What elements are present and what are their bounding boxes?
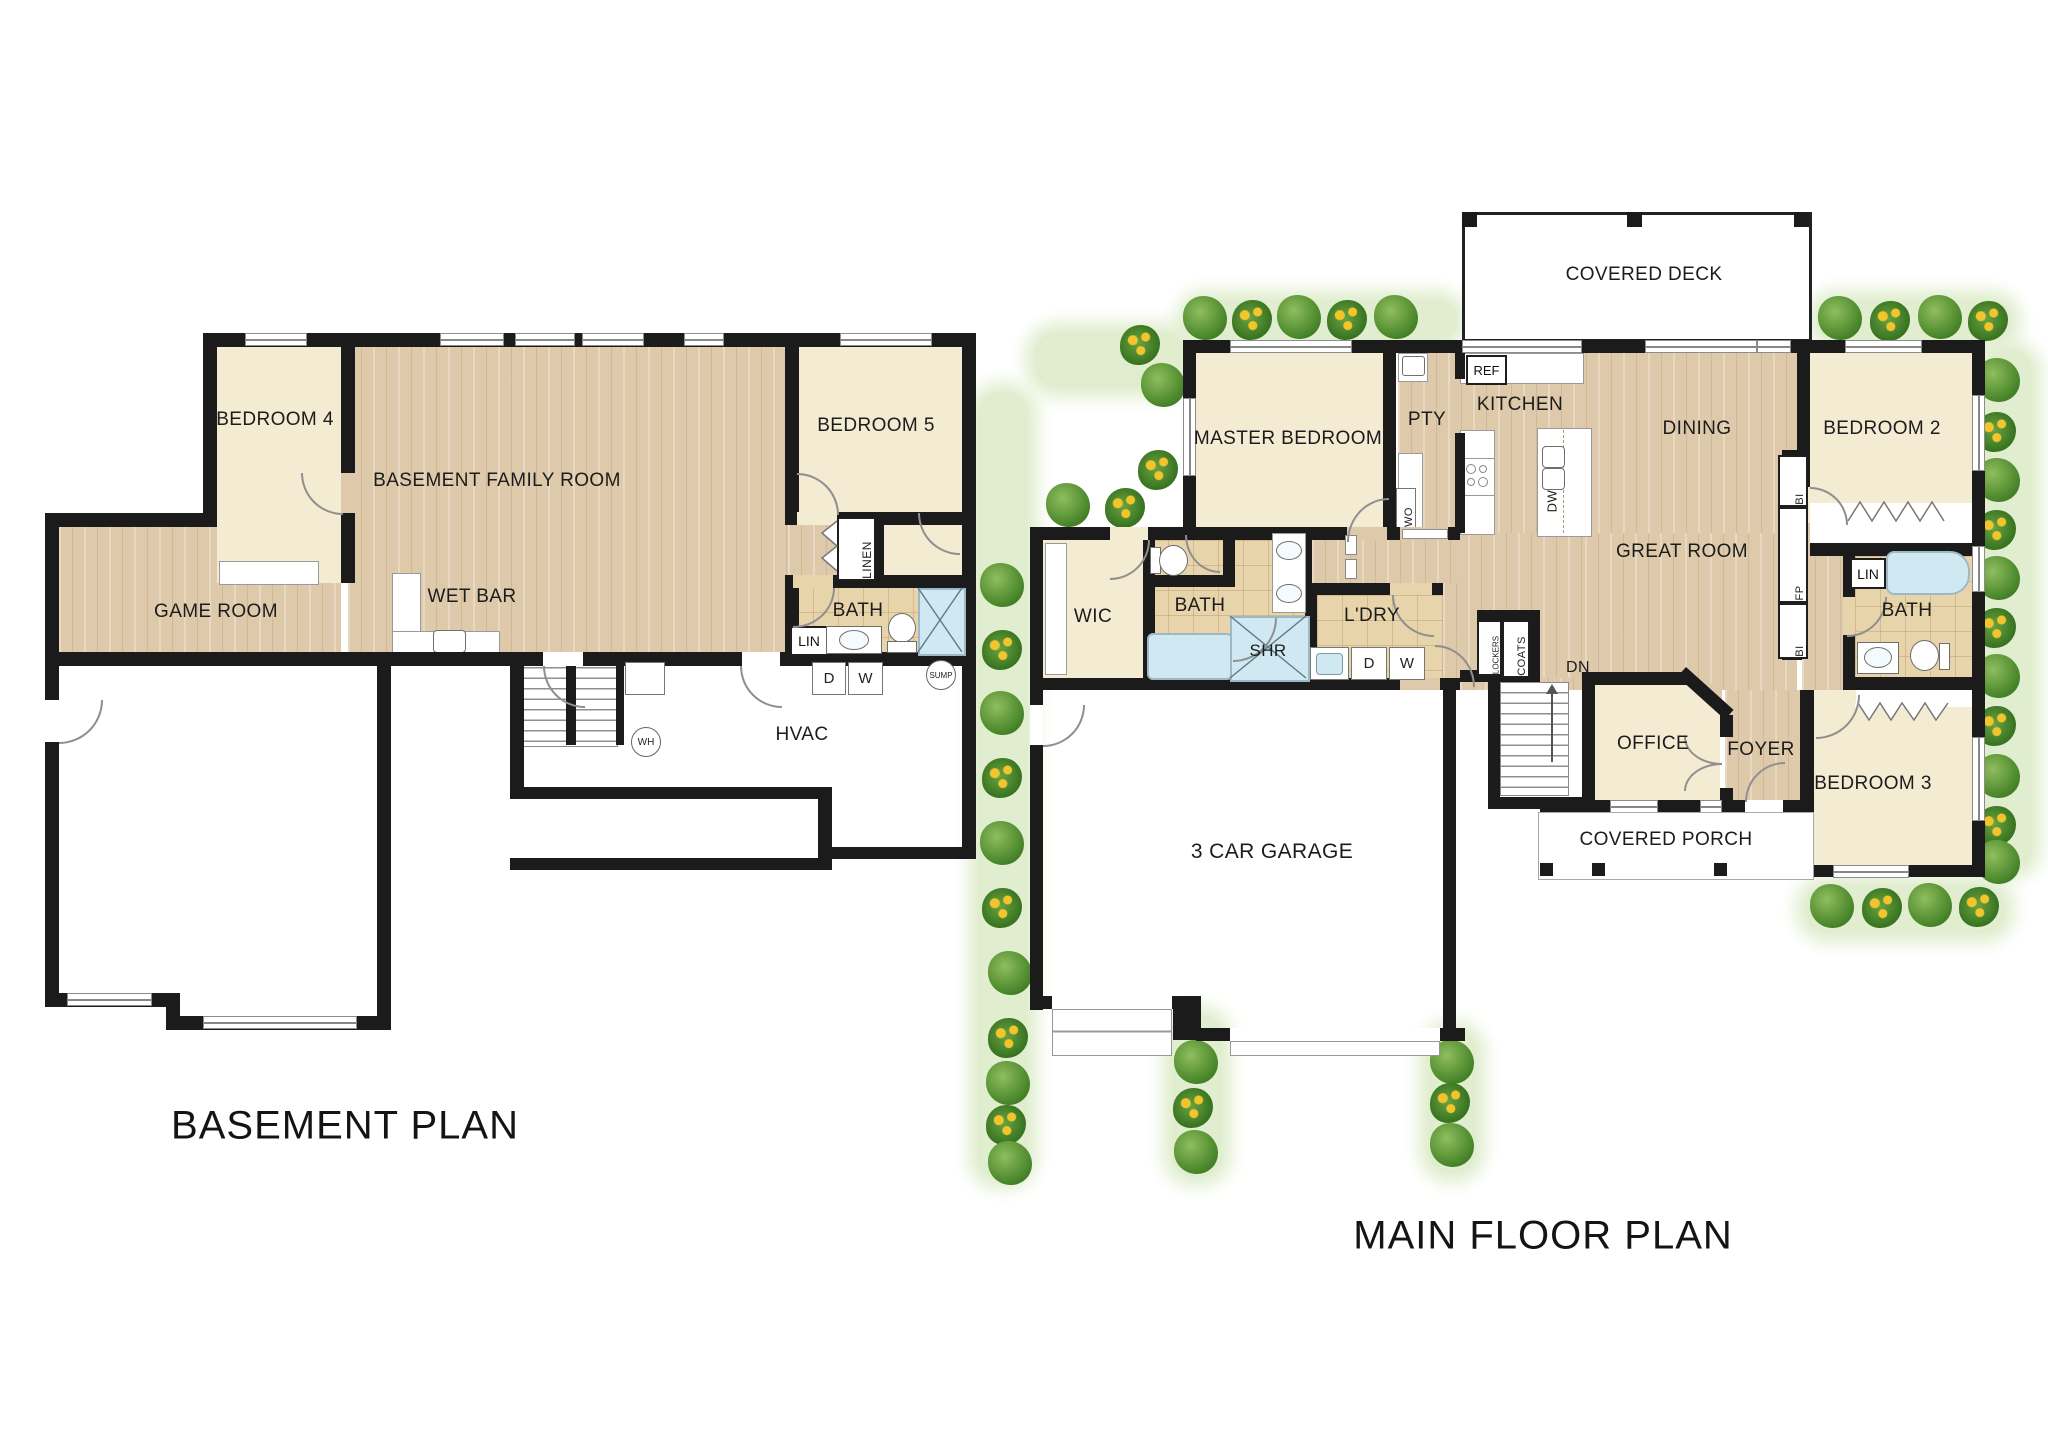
wall	[1582, 672, 1690, 685]
room-label-bath2: BATH	[1882, 600, 1933, 622]
garage-door-icon	[1052, 1009, 1172, 1056]
room-label-kitchen: KITCHEN	[1477, 394, 1563, 416]
sump-icon: SUMP	[926, 660, 956, 690]
toilet-tank-icon	[1939, 643, 1950, 670]
wall	[341, 347, 355, 583]
fireplace-box: FP	[1778, 507, 1808, 603]
room-label-bath: BATH	[1175, 595, 1226, 617]
flowering-bush-icon	[1105, 488, 1145, 528]
toilet-tank-icon	[887, 641, 917, 653]
water-heater-label: WH	[638, 737, 655, 748]
door-swing-icon	[740, 666, 782, 708]
wall	[1488, 678, 1500, 805]
room-label-foyer: FOYER	[1727, 739, 1794, 761]
wall	[203, 333, 217, 527]
bush-icon	[1277, 295, 1321, 339]
garage-door-icon	[1230, 1041, 1440, 1056]
room-label-office: OFFICE	[1617, 733, 1689, 755]
bush-icon	[986, 1061, 1030, 1105]
wall-oven-label: WO	[1403, 507, 1415, 527]
bush-icon	[1908, 883, 1952, 927]
room-label-family-room: BASEMENT FAMILY ROOM	[373, 470, 621, 492]
sliding-door	[1462, 340, 1582, 353]
dryer-label: D	[824, 670, 835, 687]
label-dishwasher: DW	[1545, 490, 1560, 513]
window	[1972, 737, 1985, 821]
sink-icon	[1276, 541, 1302, 560]
bifold-door-icon	[1848, 501, 1944, 522]
room-label-game-room: GAME ROOM	[154, 601, 278, 623]
room-label-covered-porch: COVERED PORCH	[1579, 829, 1752, 851]
window	[440, 333, 504, 346]
toilet-bowl-icon	[1910, 640, 1939, 671]
bush-icon	[1430, 1123, 1474, 1167]
bush-icon	[980, 691, 1024, 735]
washer-label: W	[858, 670, 872, 687]
room-label-garage: 3 CAR GARAGE	[1191, 840, 1353, 864]
lin-label: LIN	[1857, 566, 1879, 582]
room-label-shower: SHR	[1249, 641, 1286, 661]
pocket-door-icon	[1345, 559, 1357, 579]
window	[1230, 340, 1352, 353]
door-opening	[543, 652, 583, 666]
bush-icon	[1046, 483, 1090, 527]
bush-icon	[1918, 295, 1962, 339]
lin-closet: LIN	[790, 626, 828, 656]
lockers-label: LOCKERS	[1491, 636, 1500, 674]
door-opening	[1230, 1028, 1440, 1041]
room-label-bedroom3: BEDROOM 3	[1814, 773, 1932, 795]
sliding-door	[1645, 340, 1757, 353]
wall	[1582, 672, 1595, 808]
room-label-great-room: GREAT ROOM	[1616, 541, 1748, 563]
room-label-dining: DINING	[1663, 418, 1732, 440]
window	[684, 333, 724, 346]
island-sink-icon	[1542, 446, 1565, 468]
toilet-bowl-icon	[1159, 545, 1188, 576]
pantry-sink-icon	[1402, 356, 1425, 376]
window	[1972, 395, 1985, 471]
window	[1833, 865, 1909, 878]
lin-closet: LIN	[1850, 558, 1886, 589]
lockers-box: LOCKERS	[1477, 620, 1502, 676]
stair-rail	[1551, 692, 1553, 762]
room-label-bedroom2: BEDROOM 2	[1823, 418, 1941, 440]
bathtub-icon	[1147, 633, 1233, 680]
door-opening	[1390, 583, 1432, 595]
wall	[45, 513, 217, 527]
wall	[45, 513, 59, 1007]
door-swing-icon	[59, 700, 103, 744]
wall	[1030, 527, 1043, 1010]
bifold-door-icon	[821, 521, 838, 571]
washer-box: W	[1389, 647, 1425, 680]
wall	[1443, 678, 1456, 1041]
deck-post-icon	[1627, 212, 1642, 227]
basement-plan-title: BASEMENT PLAN	[171, 1104, 519, 1149]
wall-oven-box: WO	[1396, 488, 1416, 528]
label-down: DN	[1566, 659, 1590, 677]
toilet-bowl-icon	[888, 613, 916, 643]
bedroom4-floor	[217, 347, 341, 583]
washer-box: W	[848, 662, 883, 695]
fireplace-label: FP	[1794, 586, 1806, 601]
door-opening	[341, 473, 355, 513]
room-label-bath: BATH	[833, 600, 884, 622]
wall	[1143, 575, 1235, 587]
room-label-laundry: L'DRY	[1344, 605, 1400, 627]
main-stairs-icon	[1500, 682, 1569, 796]
window	[1972, 546, 1985, 592]
hvac-unit-icon	[625, 662, 665, 695]
sink-icon	[839, 630, 869, 650]
bathtub-icon	[1886, 551, 1970, 595]
wall	[377, 666, 391, 1030]
dryer-box: D	[812, 662, 846, 695]
stair-arrow-icon	[1546, 684, 1558, 694]
deck-post-icon	[1794, 212, 1809, 227]
bush-icon	[980, 563, 1024, 607]
wall	[510, 666, 524, 798]
deck-post-icon	[1462, 212, 1477, 227]
window	[67, 993, 152, 1006]
linen-label: LINEN	[860, 541, 874, 579]
bedroom4-closet	[219, 561, 319, 585]
builtin-box: BI	[1778, 455, 1808, 507]
room-label-bedroom5: BEDROOM 5	[817, 415, 935, 437]
window	[203, 1016, 357, 1029]
wall	[832, 847, 976, 859]
water-heater-icon: WH	[631, 727, 661, 757]
room-label-covered-deck: COVERED DECK	[1566, 264, 1723, 286]
bush-icon	[988, 951, 1032, 995]
door-opening	[1030, 705, 1043, 745]
bush-icon	[980, 821, 1024, 865]
washer-label: W	[1400, 655, 1414, 672]
dryer-box: D	[1351, 647, 1387, 680]
island-sink-icon	[1542, 468, 1565, 490]
builtin-label: BI	[1794, 494, 1806, 505]
wall	[1720, 715, 1733, 737]
flowering-bush-icon	[1138, 450, 1178, 490]
wall	[1843, 677, 1985, 690]
wic-shelf	[1045, 543, 1067, 675]
door-swing-icon	[1043, 705, 1085, 747]
bush-icon	[1810, 884, 1854, 928]
window	[245, 333, 307, 346]
door-opening	[45, 700, 59, 742]
wall	[1455, 433, 1465, 533]
room-label-wet-bar: WET BAR	[427, 586, 516, 608]
bush-icon	[1174, 1130, 1218, 1174]
door-opening	[1052, 996, 1172, 1009]
room-label-pantry: PTY	[1408, 409, 1446, 431]
window	[1757, 340, 1791, 353]
window	[1845, 340, 1922, 353]
window	[840, 333, 932, 346]
porch-post-icon	[1540, 863, 1553, 876]
bush-icon	[1183, 296, 1227, 340]
bush-icon	[1818, 296, 1862, 340]
fridge-label: REF	[1474, 363, 1500, 378]
sump-label: SUMP	[929, 671, 952, 680]
fridge-box: REF	[1466, 355, 1507, 385]
room-label-hvac: HVAC	[776, 724, 829, 746]
bush-icon	[1141, 363, 1185, 407]
room-label-bedroom4: BEDROOM 4	[216, 409, 334, 431]
coats-label: COATS	[1516, 636, 1528, 676]
burners-icon	[1463, 461, 1491, 491]
porch-post-icon	[1592, 863, 1605, 876]
linen-closet: LINEN	[837, 517, 876, 581]
bush-icon	[988, 1141, 1032, 1185]
coats-box: COATS	[1502, 620, 1530, 678]
floorplan-canvas: LINEN LIN D W SUMP WH BEDROOM 4 BASEMENT…	[0, 0, 2048, 1448]
wall	[510, 787, 832, 799]
door-opening	[742, 652, 780, 666]
sink-icon	[1276, 584, 1302, 603]
sink-icon	[1864, 647, 1892, 668]
builtin-label: BI	[1794, 646, 1806, 657]
main-floor-plan-title: MAIN FLOOR PLAN	[1353, 1214, 1733, 1259]
dryer-label: D	[1364, 655, 1375, 672]
window	[582, 333, 644, 346]
bush-icon	[1174, 1040, 1218, 1084]
laundry-sink-box	[1310, 647, 1349, 680]
lin-label: LIN	[798, 633, 820, 649]
wall	[616, 657, 624, 745]
window	[515, 333, 575, 346]
builtin-box: BI	[1778, 603, 1808, 659]
porch-post-icon	[1714, 863, 1727, 876]
bifold-door-icon	[1858, 702, 1948, 721]
shower-x-icon	[918, 588, 962, 652]
room-label-wic: WIC	[1074, 606, 1112, 628]
wall	[510, 858, 832, 870]
room-label-master-bedroom: MASTER BEDROOM	[1194, 428, 1382, 450]
door-opening	[793, 575, 833, 588]
wet-bar-sink-icon	[433, 630, 466, 653]
door-opening	[1110, 527, 1148, 540]
door-leaf-icon	[1402, 529, 1448, 539]
bush-icon	[1374, 295, 1418, 339]
wall	[1223, 540, 1235, 587]
